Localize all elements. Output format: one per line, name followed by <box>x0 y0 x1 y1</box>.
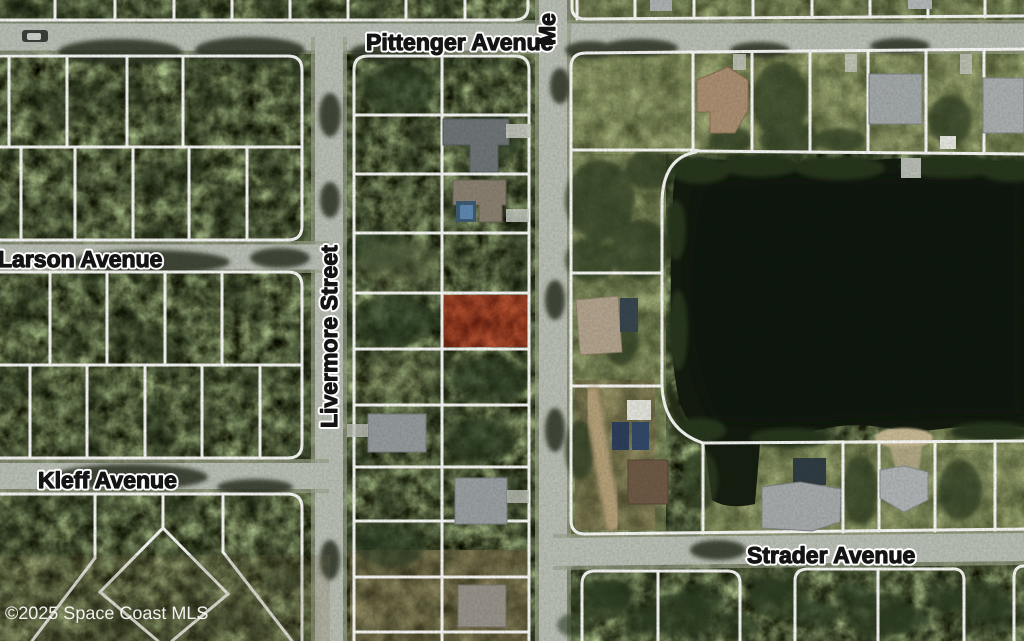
svg-text:Livermore Street: Livermore Street <box>316 245 342 428</box>
svg-text:Larson Avenue: Larson Avenue <box>0 246 162 272</box>
svg-text:Strader Avenue: Strader Avenue <box>747 542 915 568</box>
svg-text:Me: Me <box>534 13 560 45</box>
svg-text:Kleff Avenue: Kleff Avenue <box>38 467 177 493</box>
svg-text:Pittenger Avenue: Pittenger Avenue <box>366 29 553 55</box>
svg-text:©2025 Space Coast MLS: ©2025 Space Coast MLS <box>5 603 208 623</box>
